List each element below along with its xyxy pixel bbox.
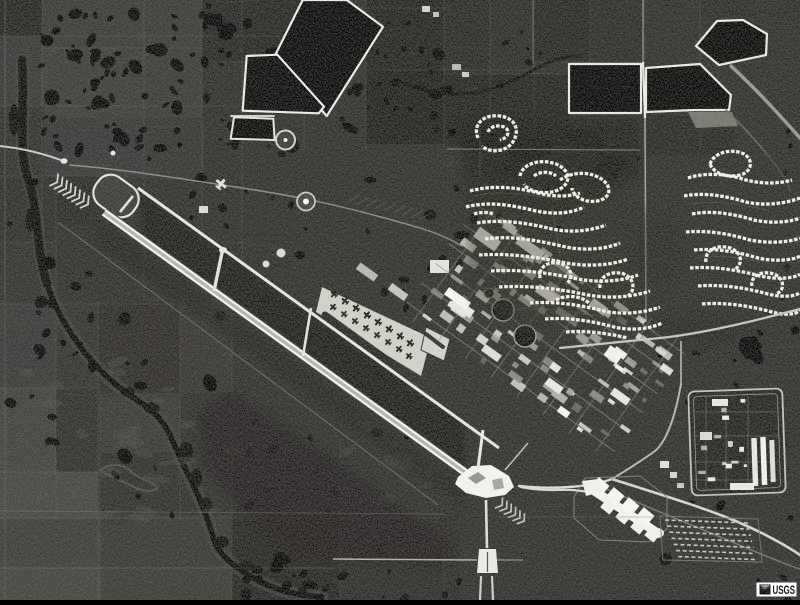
svg-text:USGS: USGS	[773, 583, 796, 597]
